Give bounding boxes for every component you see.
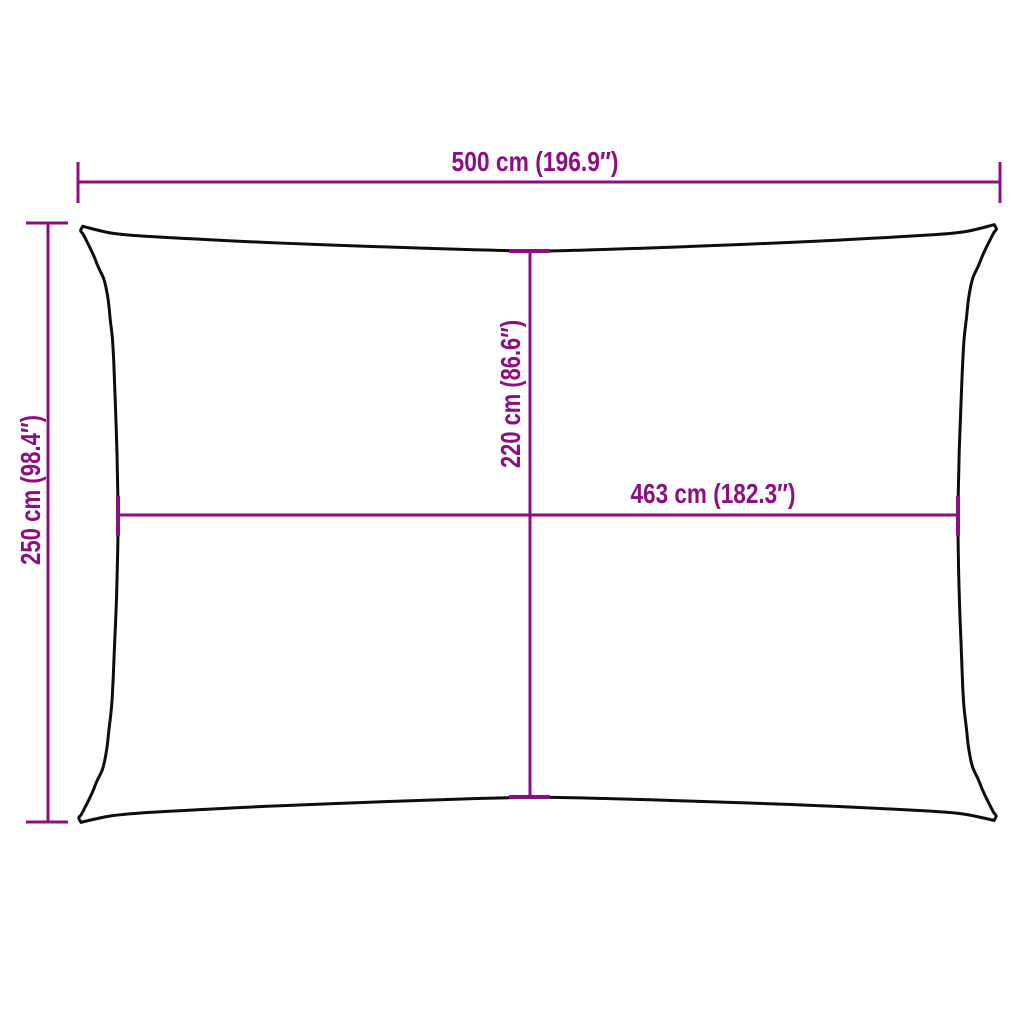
svg-text:463 cm (182.3″): 463 cm (182.3″) [631,478,796,509]
svg-text:220 cm (86.6″): 220 cm (86.6″) [495,320,526,468]
svg-text:250 cm (98.4″): 250 cm (98.4″) [15,415,46,565]
svg-text:500 cm (196.9″): 500 cm (196.9″) [452,146,619,177]
